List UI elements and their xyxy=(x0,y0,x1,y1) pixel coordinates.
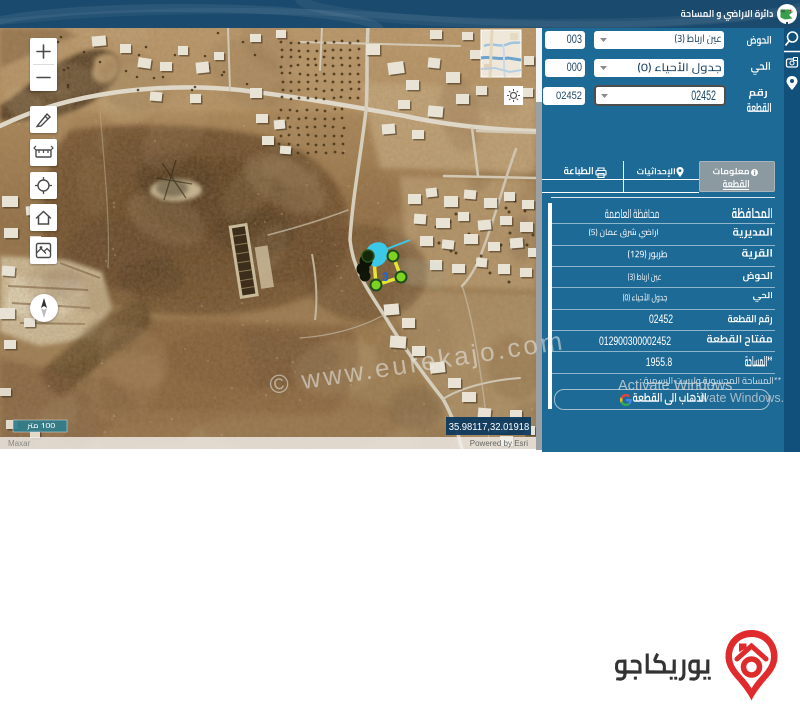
svg-text:Maxar: Maxar xyxy=(8,439,31,448)
svg-text:35.98117,32.01918: 35.98117,32.01918 xyxy=(449,422,530,434)
svg-text:3: 3 xyxy=(382,270,389,284)
svg-text:Powered by Esri: Powered by Esri xyxy=(470,439,528,448)
